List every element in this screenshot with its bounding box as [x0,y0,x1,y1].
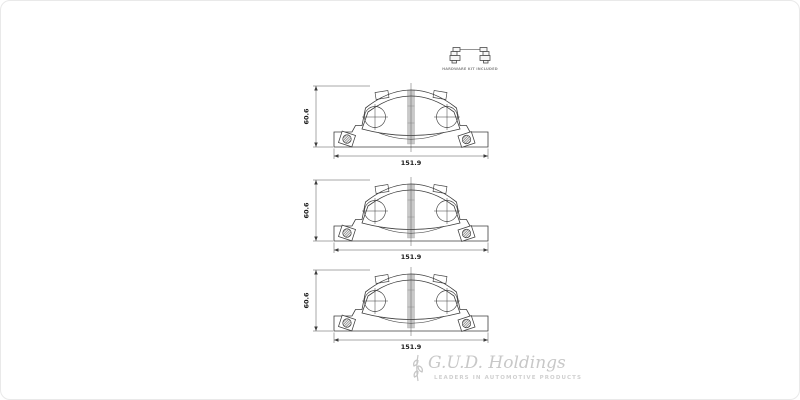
hardware-kit-thumbnail: HARDWARE KIT INCLUDED [442,46,498,71]
width-dimension-label: 151.9 [401,159,422,167]
brake-pad-diagram-3: 60.6 151.9 [294,267,491,355]
width-dimension-label: 151.9 [401,343,422,351]
logo-company-name: G.U.D. Holdings [428,353,582,373]
gud-holdings-logo: G.U.D. Holdings LEADERS IN AUTOMOTIVE PR… [411,353,582,383]
width-dimension-label: 151.9 [401,253,422,261]
height-dimension-label: 60.6 [303,108,311,125]
logo-text-block: G.U.D. Holdings LEADERS IN AUTOMOTIVE PR… [428,353,582,381]
brake-pad-diagram-1: 60.6 151.9 [294,83,491,171]
height-dimension-label: 60.6 [303,202,311,219]
hardware-kit-caption: HARDWARE KIT INCLUDED [442,67,498,71]
logo-tagline: LEADERS IN AUTOMOTIVE PRODUCTS [434,375,582,381]
brake-pad-drawing: 60.6 151.9 [294,267,491,355]
brake-pad-diagram-2: 60.6 151.9 [294,177,491,265]
brake-pad-drawing: 60.6 151.9 [294,83,491,171]
wheat-sprig-icon [411,353,424,383]
height-dimension-label: 60.6 [303,292,311,309]
brake-pad-product-drawing: HARDWARE KIT INCLUDED 60.6 151.9 60.6 15… [0,0,800,400]
abutment-clips-icon [446,46,494,66]
brake-pad-drawing: 60.6 151.9 [294,177,491,265]
